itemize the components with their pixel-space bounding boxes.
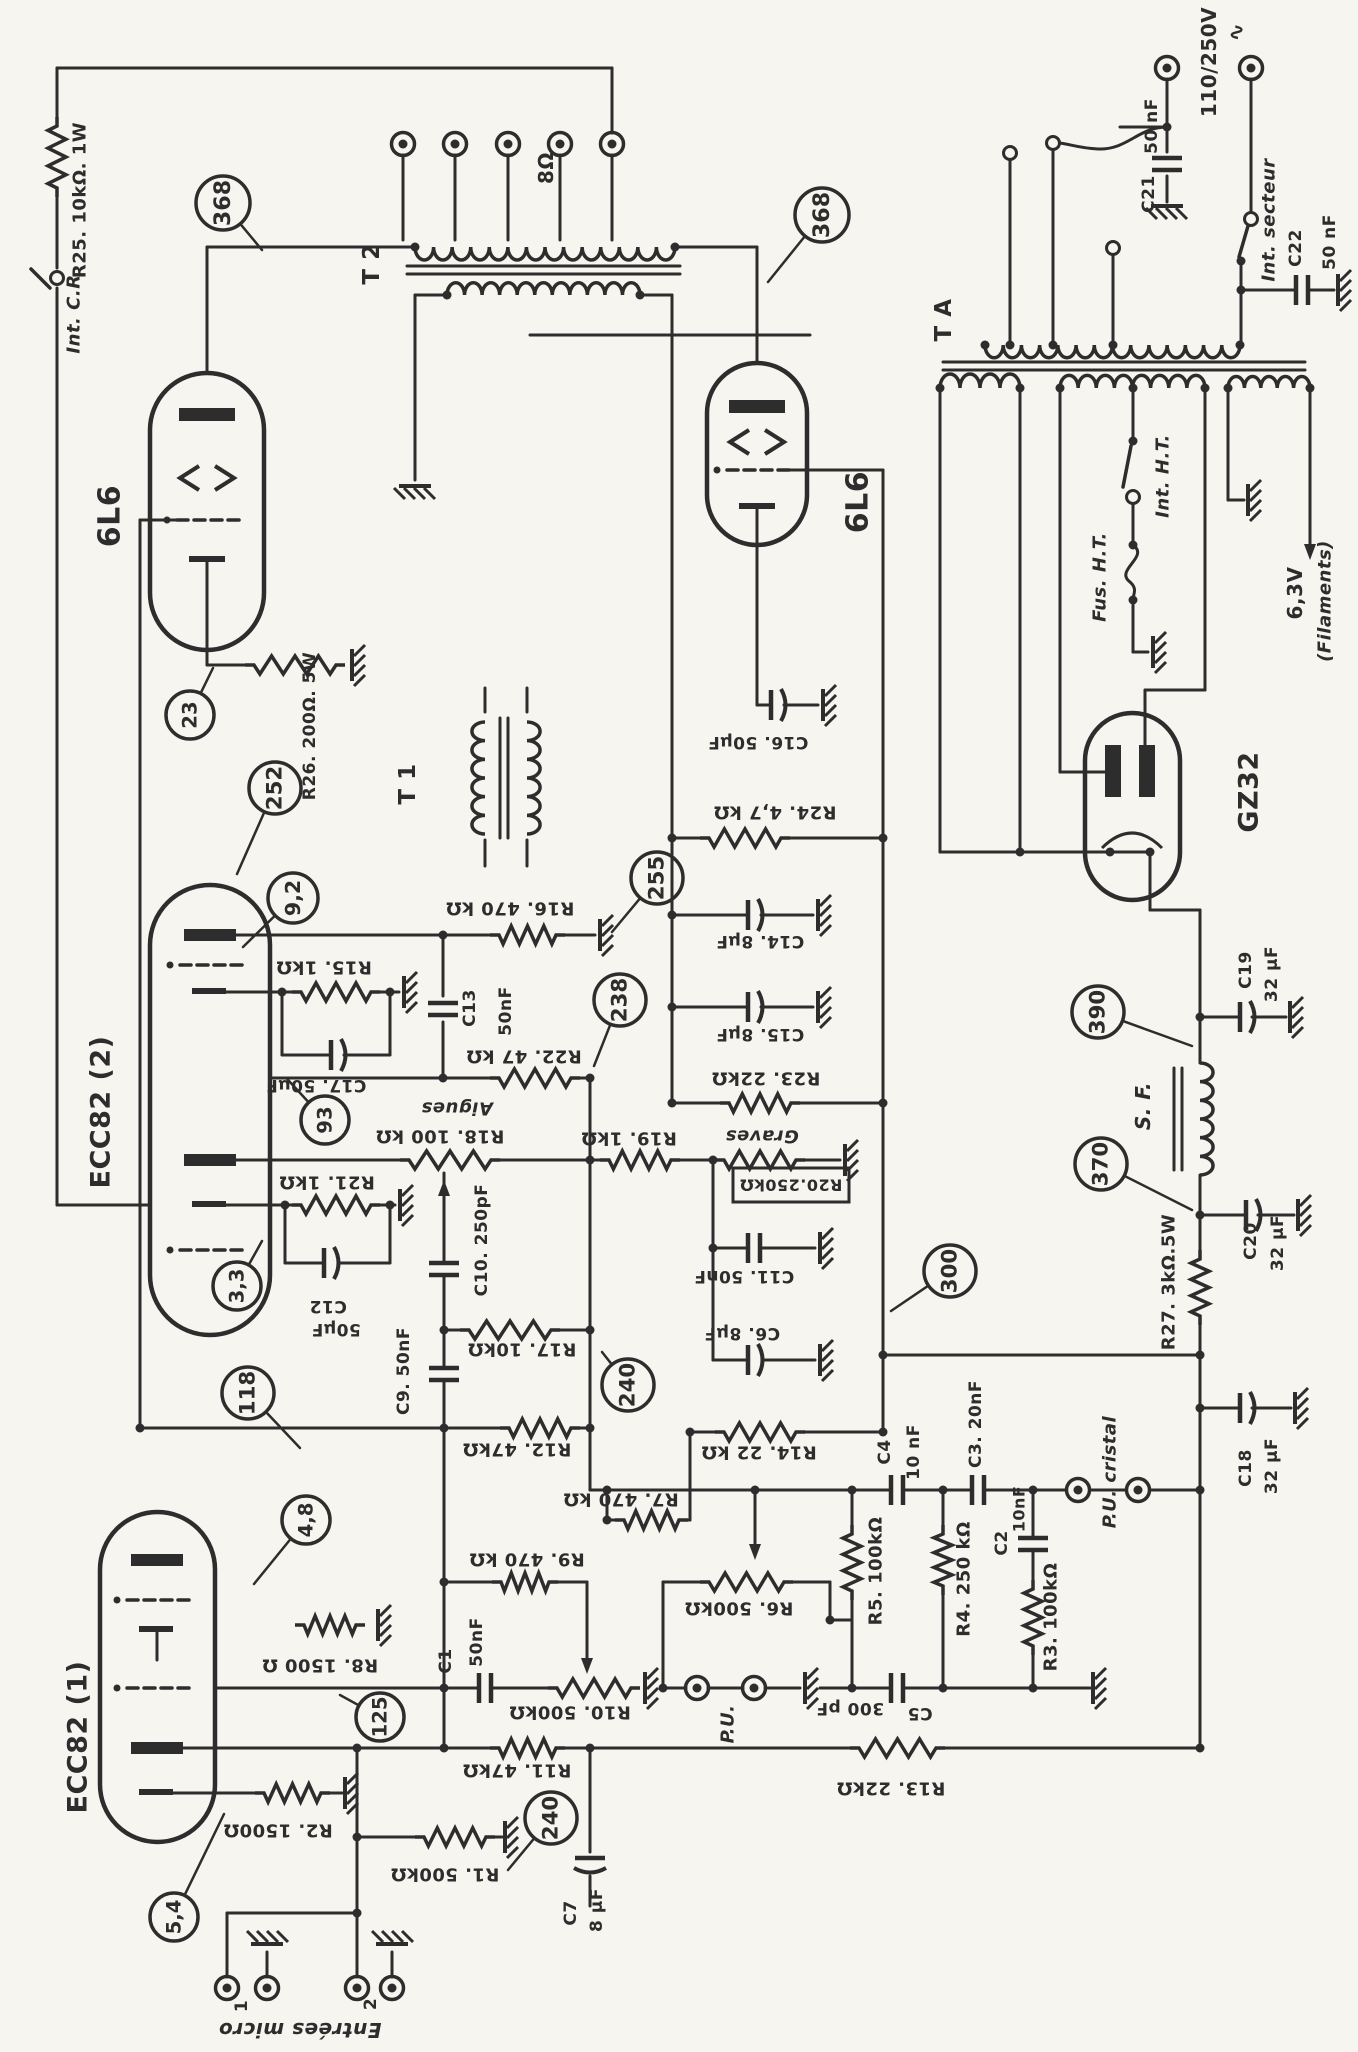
label-8-f: 8 μF [587, 1888, 607, 1932]
label--filaments-: (Filaments) [1315, 540, 1336, 662]
label-c7: C7 [561, 1900, 581, 1925]
resistor-R21 [292, 1196, 380, 1214]
ground-hatch [602, 945, 613, 956]
callout-value-118: 118 [236, 1371, 261, 1416]
label-c15-8-f: C15. 8μF [716, 1024, 804, 1044]
capacitor-C2 [1018, 1538, 1048, 1550]
junction-dot [848, 1486, 857, 1495]
ground-hatch [406, 1002, 417, 1013]
ground-hatch [507, 1847, 518, 1858]
ground-hatch [807, 1688, 818, 1699]
beam-plate-left [180, 466, 199, 490]
junction-dot [1029, 1486, 1038, 1495]
label-r3-100k-: R3. 100kΩ [1041, 1563, 1062, 1672]
label-t-2: T 2 [359, 243, 385, 284]
junction-dot [1163, 123, 1172, 132]
ground-symbol [1290, 997, 1303, 1038]
label-r12-47k-: R12. 47kΩ [463, 1439, 572, 1460]
resistor-R16 [490, 926, 565, 944]
ground-symbol [400, 1185, 413, 1226]
tube-electrode [729, 400, 785, 413]
junction-dot [586, 1744, 595, 1753]
junction-dot [848, 1684, 857, 1693]
ground-hatch [1176, 208, 1187, 219]
label-r4-250-k-: R4. 250 kΩ [954, 1521, 975, 1637]
ground-hatch [277, 1931, 288, 1942]
resistor-R5 [843, 1525, 861, 1600]
ground-symbol [820, 1228, 833, 1269]
ground-hatch [807, 1668, 818, 1679]
coil-T1-left [472, 722, 485, 834]
label-r19-1k-: R19. 1kΩ [581, 1128, 677, 1149]
junction-dot [353, 1744, 362, 1753]
label-1: 1 [232, 2000, 252, 2012]
junction-dot [386, 1201, 395, 1210]
junction-dot [686, 1428, 695, 1437]
ground-hatch [402, 1931, 413, 1942]
junction-dot [278, 988, 287, 997]
ground-hatch [822, 1350, 833, 1361]
switch-contact [1245, 213, 1258, 226]
junction-dot [1306, 384, 1315, 393]
ground-hatch [1095, 1668, 1106, 1679]
ground-hatch [424, 488, 435, 499]
junction-dot [1016, 848, 1025, 857]
resistor-R10 [548, 1679, 640, 1697]
label-r25-10k-1w: R25. 10kΩ. 1W [70, 122, 91, 278]
junction-dot [586, 1326, 595, 1335]
ground-symbol [352, 645, 365, 686]
label-8-: 8Ω [534, 152, 558, 184]
label-ecc82-2-: ECC82 (2) [86, 1035, 117, 1188]
junction-dot [586, 1424, 595, 1433]
terminal-micro-gnd-2-pin [388, 1984, 397, 1993]
terminal-mains-110-pin [1163, 64, 1172, 73]
tube-electrode [1105, 745, 1121, 797]
ground-hatch [414, 488, 425, 499]
ground-symbol [600, 915, 613, 956]
ground-symbol [820, 1340, 833, 1381]
ground-hatch [372, 1931, 383, 1942]
coil-SF-choke [1200, 1063, 1213, 1175]
grid-dot [167, 962, 174, 969]
resistor-R13 [850, 1739, 945, 1757]
callout-value-23: 23 [179, 701, 202, 728]
junction-dot [1196, 1351, 1205, 1360]
label-32-f: 32 μF [1268, 1215, 1288, 1271]
ground-hatch [402, 1185, 413, 1196]
callout-value-238: 238 [608, 978, 633, 1023]
resistor-R26 [245, 656, 345, 674]
ground-hatch [507, 1817, 518, 1828]
ground-hatch [1155, 652, 1166, 663]
ground-hatch [647, 1678, 658, 1689]
junction-dot [879, 1351, 888, 1360]
schematic-page: 368368232522559,2933,3238118240300390370… [0, 0, 1358, 2052]
ground-hatch [1300, 1205, 1311, 1216]
ground-hatch [380, 1625, 391, 1636]
label-6l6: 6L6 [93, 485, 128, 547]
callout-pointer [254, 1539, 291, 1584]
callout-pointer [201, 668, 213, 693]
capacitor-C1 [479, 1673, 491, 1703]
resistor-R19 [600, 1151, 680, 1169]
ground-hatch [647, 1698, 658, 1709]
coil-T1-right [527, 722, 540, 834]
ground-hatch [820, 925, 831, 936]
ground-hatch [406, 982, 417, 993]
callout-pointer [184, 1814, 224, 1895]
ground-hatch [602, 935, 613, 946]
junction-dot [1224, 384, 1233, 393]
capacitor-C12 [324, 1247, 339, 1279]
label-c13: C13 [460, 989, 480, 1027]
callout-pointer [1124, 1176, 1192, 1210]
tube-electrode [184, 1154, 236, 1166]
label-32-f: 32 μF [1262, 1438, 1282, 1494]
ground-symbol [394, 486, 435, 499]
junction-dot [386, 988, 395, 997]
junction-dot [1196, 1486, 1205, 1495]
label-r17-10k-: R17. 10kΩ [468, 1339, 577, 1360]
junction-dot [440, 1578, 449, 1587]
label-300-pf: 300 pF [816, 1698, 884, 1718]
switch-contact [51, 272, 64, 285]
junction-dot [1029, 1684, 1038, 1693]
tube-electrode [184, 929, 236, 941]
label-50nf: 50nF [467, 1617, 487, 1666]
terminal-pu-1-pin [693, 1684, 702, 1693]
ground-hatch [1250, 500, 1261, 511]
junction-dot [879, 1099, 888, 1108]
junction-dot [1146, 848, 1155, 857]
label-c1: C1 [436, 1648, 456, 1673]
junction-dot [1056, 384, 1065, 393]
ground-hatch [402, 1215, 413, 1226]
junction-dot [939, 1486, 948, 1495]
label-r14-22-k-: R14. 22 kΩ [701, 1442, 817, 1463]
resistor-R17 [460, 1321, 560, 1339]
resistor-R9 [492, 1573, 558, 1591]
junction-dot [353, 1833, 362, 1842]
coil-T2-secondary [447, 283, 640, 295]
ground-hatch [647, 1668, 658, 1679]
label-p-u-: P.U. [718, 1705, 739, 1744]
switch-contact [1004, 147, 1017, 160]
callout-value-4,8: 4,8 [295, 1503, 318, 1538]
wiper-arrow-head [438, 1180, 450, 1196]
junction-dot [709, 1156, 718, 1165]
label-c6-8-f: C6. 8μF [704, 1323, 780, 1343]
junction-dot [1129, 437, 1138, 446]
beam-plate-right [215, 466, 234, 490]
terminal-speaker-3-pin [504, 140, 513, 149]
junction-dot [1196, 1211, 1205, 1220]
junction-dot [603, 1516, 612, 1525]
ground-hatch [1250, 490, 1261, 501]
label-r16-470-k-: R16. 470 kΩ [446, 898, 575, 919]
label-r24-4-7-k-: R24. 4,7 kΩ [714, 802, 837, 823]
label-6l6: 6L6 [841, 471, 876, 533]
label-r20-250k-: R20.250kΩ [740, 1176, 843, 1195]
junction-dot [439, 931, 448, 940]
junction-dot [411, 243, 420, 252]
resistor-R11 [490, 1739, 565, 1757]
ground-hatch [1297, 1398, 1308, 1409]
ground-hatch [825, 715, 836, 726]
ground-hatch [1166, 208, 1177, 219]
callout-pointer [891, 1286, 928, 1311]
tube-electrode [192, 1201, 226, 1207]
ground-hatch [1095, 1698, 1106, 1709]
label-t-a: T A [931, 299, 957, 342]
ground-hatch [1297, 1408, 1308, 1419]
ground-hatch [394, 488, 405, 499]
capacitor-C13 [428, 1003, 458, 1015]
resistor-R27 [1191, 1250, 1209, 1325]
resistor-R8 [295, 1616, 365, 1634]
ground-symbol [1153, 632, 1166, 673]
resistor-R7 [615, 1511, 688, 1529]
label-ecc82-1-: ECC82 (1) [63, 1660, 94, 1813]
label-c4: C4 [875, 1439, 895, 1464]
label-r8-1500-: R8. 1500 Ω [262, 1655, 378, 1676]
ground-hatch [406, 972, 417, 983]
label-t-1: T 1 [395, 763, 421, 804]
label-r15-1k-: R15. 1kΩ [276, 957, 372, 978]
label-r18-100-k-: R18. 100 kΩ [376, 1126, 505, 1147]
tube-electrode [192, 988, 226, 994]
junction-dot [751, 1486, 760, 1495]
label-c19: C19 [1236, 951, 1256, 989]
switch-contact [1127, 491, 1140, 504]
label-fus-h-t-: Fus. H.T. [1090, 532, 1111, 622]
ground-hatch [1095, 1688, 1106, 1699]
callout-pointer [266, 1412, 300, 1448]
ground-hatch [647, 1688, 658, 1699]
ground-hatch [820, 997, 831, 1008]
ground-hatch [825, 705, 836, 716]
tube-electrode [179, 408, 235, 421]
tube-electrode [131, 1742, 183, 1754]
callout-value-368: 368 [809, 192, 835, 238]
cap-plate [334, 1247, 339, 1279]
ground-symbol [1248, 480, 1261, 521]
label-int-h-t-: Int. H.T. [1153, 434, 1174, 518]
ground-hatch [404, 488, 415, 499]
junction-dot [659, 1684, 668, 1693]
ground-hatch [1292, 1027, 1303, 1038]
junction-dot [709, 1244, 718, 1253]
ground-symbol [404, 972, 417, 1013]
ground-hatch [1297, 1418, 1308, 1429]
resistor-R22 [490, 1069, 580, 1087]
callout-value-300: 300 [938, 1249, 963, 1294]
label-c21: C21 [1139, 175, 1159, 213]
ground-symbol [505, 1817, 518, 1858]
label-r1-500k-: R1. 500kΩ [391, 1864, 500, 1885]
grid-dot [164, 517, 171, 524]
callout-value-390: 390 [1086, 990, 1111, 1035]
cap-plate [758, 1344, 763, 1376]
ground-hatch [822, 1248, 833, 1259]
label-r5-100k-: R5. 100kΩ [866, 1517, 887, 1626]
switch-contact [1047, 137, 1060, 150]
junction-dot [353, 1909, 362, 1918]
ground-hatch [1340, 280, 1351, 291]
grid-dot [114, 1685, 121, 1692]
junction-dot [136, 1424, 145, 1433]
terminal-speaker-2-pin [451, 140, 460, 149]
tube-GZ32 [1085, 713, 1180, 900]
wire-path-2 [1102, 833, 1162, 848]
junction-dot [1237, 257, 1246, 266]
label-c5: C5 [907, 1703, 932, 1723]
terminal-speaker-4-pin [556, 140, 565, 149]
junction-dot [440, 1684, 449, 1693]
ground-symbol [372, 1931, 413, 1944]
label-c17-50-f: C17. 50μF [266, 1075, 367, 1095]
capacitor-C5 [891, 1673, 903, 1703]
ground-hatch [1340, 270, 1351, 281]
callout-value-93: 93 [314, 1106, 337, 1133]
terminal-micro-gnd-1-pin [263, 1984, 272, 1993]
callout-pointer [594, 1024, 610, 1066]
ground-symbol [818, 895, 831, 936]
resistor-R20 [715, 1151, 805, 1169]
label-r11-47k-: R11. 47kΩ [463, 1760, 572, 1781]
callout-pointer [237, 812, 264, 874]
callout-value-368: 368 [210, 180, 236, 226]
junction-dot [1196, 1404, 1205, 1413]
ground-hatch [1300, 1195, 1311, 1206]
tube-electrode [739, 503, 775, 509]
label--: ∿ [1225, 23, 1250, 42]
label-r9-470-k-: R9. 470 kΩ [469, 1549, 585, 1570]
junction-dot [1129, 541, 1138, 550]
label-r27-3k-5w: R27. 3kΩ.5W [1159, 1214, 1180, 1351]
wiper-arrow-head [581, 1658, 593, 1674]
grid-dot [714, 467, 721, 474]
label-s-f-: S. F. [1131, 1082, 1155, 1130]
label-r7-470-k-: R7. 470 kΩ [563, 1489, 679, 1510]
ground-hatch [257, 1931, 268, 1942]
junction-dot [668, 1003, 677, 1012]
capacitor-C7 [574, 1858, 606, 1873]
resistor-R3 [1024, 1580, 1042, 1655]
coil-TA-sec-6V3 [1228, 377, 1310, 388]
ground-hatch [602, 915, 613, 926]
ground-hatch [820, 915, 831, 926]
ground-hatch [392, 1931, 403, 1942]
junction-dot [1006, 341, 1015, 350]
ground-hatch [820, 1007, 831, 1018]
resistor-R25 [48, 117, 66, 197]
label-c11-50nf: C11. 50nF [694, 1266, 794, 1286]
callout-value-125: 125 [369, 1696, 392, 1737]
label-c2: C2 [992, 1530, 1012, 1555]
ground-hatch [820, 905, 831, 916]
ground-hatch [354, 675, 365, 686]
terminal-speaker-1-pin [399, 140, 408, 149]
ground-hatch [380, 1635, 391, 1646]
coil-TA-sec-5V [940, 374, 1020, 388]
junction-dot [981, 341, 990, 350]
capacitor-C21 [1152, 158, 1182, 170]
ground-hatch [1340, 290, 1351, 301]
wire-path-1 [1126, 545, 1138, 600]
label-c3-20nf: C3. 20nF [966, 1380, 986, 1468]
junction-dot [586, 1156, 595, 1165]
junction-dot [879, 1428, 888, 1437]
ground-hatch [1155, 632, 1166, 643]
label-6-3v: 6,3V [1283, 567, 1307, 620]
junction-dot [1196, 1013, 1205, 1022]
ground-symbol [247, 1931, 288, 1944]
callout-value-252: 252 [263, 766, 288, 811]
label-r2-1500-: R2. 1500Ω [223, 1820, 332, 1841]
junction-dot [668, 911, 677, 920]
ground-hatch [820, 1017, 831, 1028]
capacitor-C22 [1296, 275, 1308, 305]
callout-value-3,3: 3,3 [226, 1269, 249, 1304]
terminal-micro-2-pin [353, 1984, 362, 1993]
label-gz32: GZ32 [1234, 751, 1265, 832]
junction-dot [1196, 1744, 1205, 1753]
ground-hatch [847, 1150, 858, 1161]
callout-pointer [249, 1241, 262, 1265]
beam-plate-left [730, 430, 749, 454]
label-r21-1k-: R21. 1kΩ [279, 1172, 375, 1193]
capacitor-C6 [748, 1344, 763, 1376]
ground-hatch [820, 987, 831, 998]
label-r13-22k-: R13. 22kΩ [837, 1778, 946, 1799]
ground-hatch [822, 1340, 833, 1351]
resistor-R18 [400, 1151, 500, 1169]
ground-hatch [382, 1931, 393, 1942]
ground-hatch [267, 1931, 278, 1942]
junction-dot [440, 1744, 449, 1753]
junction-dot [1049, 341, 1058, 350]
callout-value-255: 255 [645, 856, 670, 901]
junction-dot [439, 1074, 448, 1083]
label-110-250v: 110/250V [1197, 7, 1221, 117]
terminal-speaker-5-pin [608, 140, 617, 149]
label-c22: C22 [1286, 229, 1306, 267]
callout-value-9,2: 9,2 [281, 880, 305, 916]
ground-hatch [820, 895, 831, 906]
terminal-mains-250-pin [1247, 64, 1256, 73]
callout-pointer [612, 898, 640, 932]
junction-dot [586, 1074, 595, 1083]
ground-hatch [1155, 662, 1166, 673]
label-50-nf: 50 nF [1320, 214, 1340, 270]
ground-hatch [602, 925, 613, 936]
ground-hatch [822, 1258, 833, 1269]
resistor-R12 [500, 1419, 580, 1437]
callout-value-370: 370 [1089, 1142, 1114, 1187]
callout-value-240: 240 [539, 1796, 564, 1841]
ground-hatch [825, 685, 836, 696]
callout-pointer [602, 1352, 612, 1365]
ground-symbol [1298, 1195, 1311, 1236]
terminal-micro-1-pin [223, 1984, 232, 1993]
callout-pointer [1122, 1021, 1192, 1046]
cap-plate [574, 1868, 606, 1873]
switch-blade [1239, 226, 1248, 257]
ground-hatch [1250, 510, 1261, 521]
junction-dot [1236, 341, 1245, 350]
